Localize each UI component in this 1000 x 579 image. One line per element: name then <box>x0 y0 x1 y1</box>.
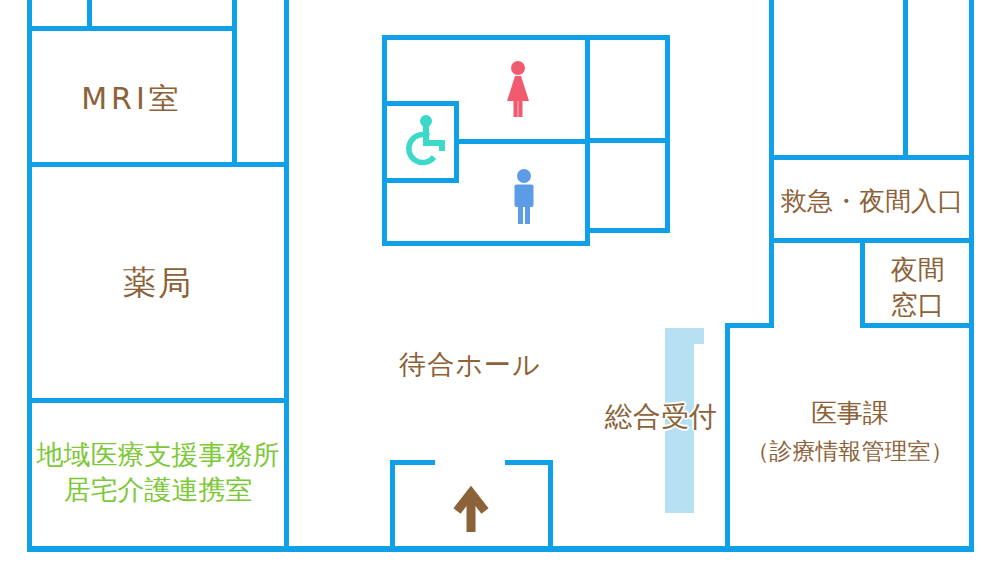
male-restroom-icon <box>510 168 538 226</box>
wheelchair-accessible-icon <box>400 114 448 168</box>
room-label-mri: MRI室 <box>32 79 232 118</box>
community-office-line1: 地域医療支援事務所 <box>32 437 284 472</box>
wall-segment <box>769 0 774 328</box>
wall-segment <box>284 0 289 552</box>
medical-affairs-line2: （診療情報管理室） <box>730 437 970 467</box>
wall-segment <box>382 101 459 106</box>
wall-segment <box>382 178 459 183</box>
up-arrow-icon <box>452 486 490 534</box>
medical-affairs-line1: 医事課 <box>730 397 970 431</box>
wall-segment <box>454 139 590 144</box>
wall-segment <box>382 35 387 246</box>
wall-segment <box>382 35 670 40</box>
room-label-night-window: 夜間 窓口 <box>865 252 970 322</box>
wall-segment <box>390 460 395 552</box>
wall-segment <box>665 35 670 233</box>
wall-segment <box>769 238 974 243</box>
wall-segment <box>548 460 553 552</box>
room-label-community-office: 地域医療支援事務所 居宅介護連携室 <box>32 437 284 507</box>
wall-segment <box>860 323 974 328</box>
female-restroom-icon <box>503 60 533 120</box>
room-label-medical-affairs: 医事課 （診療情報管理室） <box>730 397 970 467</box>
wall-segment <box>382 241 590 246</box>
hospital-floor-map: MRI室 薬局 地域医療支援事務所 居宅介護連携室 待合ホール 総合受付 医事課… <box>0 0 1000 579</box>
room-label-waiting-hall: 待合ホール <box>360 347 580 382</box>
community-office-line2: 居宅介護連携室 <box>32 472 284 507</box>
room-label-reception: 総合受付 <box>598 399 724 435</box>
room-label-pharmacy: 薬局 <box>32 262 284 305</box>
wall-segment <box>390 460 435 465</box>
night-window-line1: 夜間 <box>865 252 970 287</box>
wall-segment <box>585 228 670 233</box>
wall-segment <box>27 546 974 552</box>
wall-segment <box>27 26 237 31</box>
wall-segment <box>725 323 774 328</box>
room-label-emergency-entrance: 救急・夜間入口 <box>774 185 970 219</box>
wall-segment <box>903 0 908 160</box>
night-window-line2: 窓口 <box>865 287 970 322</box>
wall-segment <box>232 0 237 167</box>
wall-segment <box>585 138 670 143</box>
wall-segment <box>505 460 553 465</box>
wall-segment <box>27 162 289 167</box>
wall-segment <box>27 398 289 403</box>
wall-segment <box>769 155 974 160</box>
